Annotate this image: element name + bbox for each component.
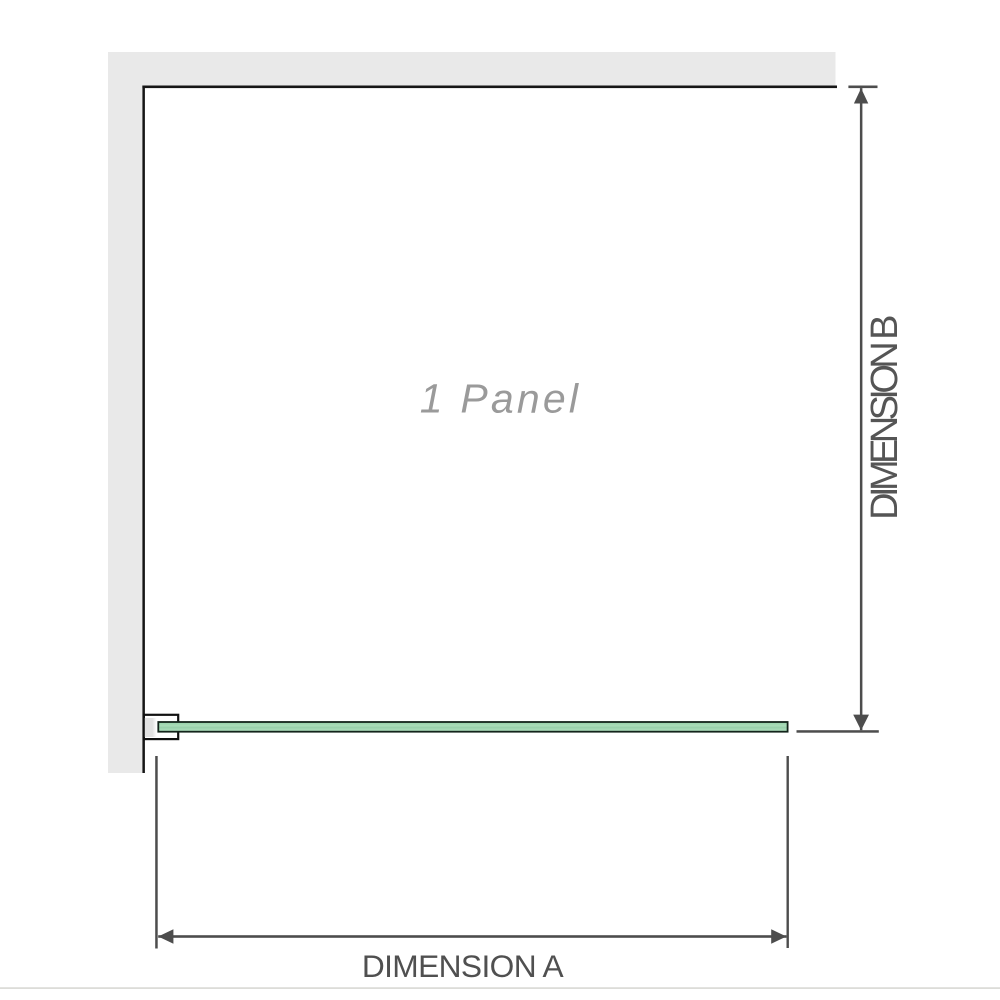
svg-text:DIMENSION A: DIMENSION A (362, 948, 565, 984)
svg-text:DIMENSION B: DIMENSION B (864, 316, 906, 520)
svg-text:1 Panel: 1 Panel (420, 376, 581, 422)
